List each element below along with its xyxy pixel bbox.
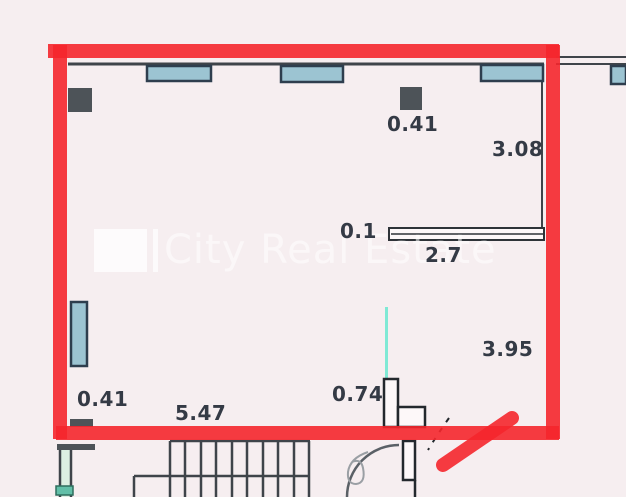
- floor-plan: City Real Estate 0.41 3.08 0.1 2.7 3.95 …: [0, 0, 626, 497]
- selection-outline: [0, 0, 626, 497]
- selection-diagonal-stroke: [443, 418, 512, 465]
